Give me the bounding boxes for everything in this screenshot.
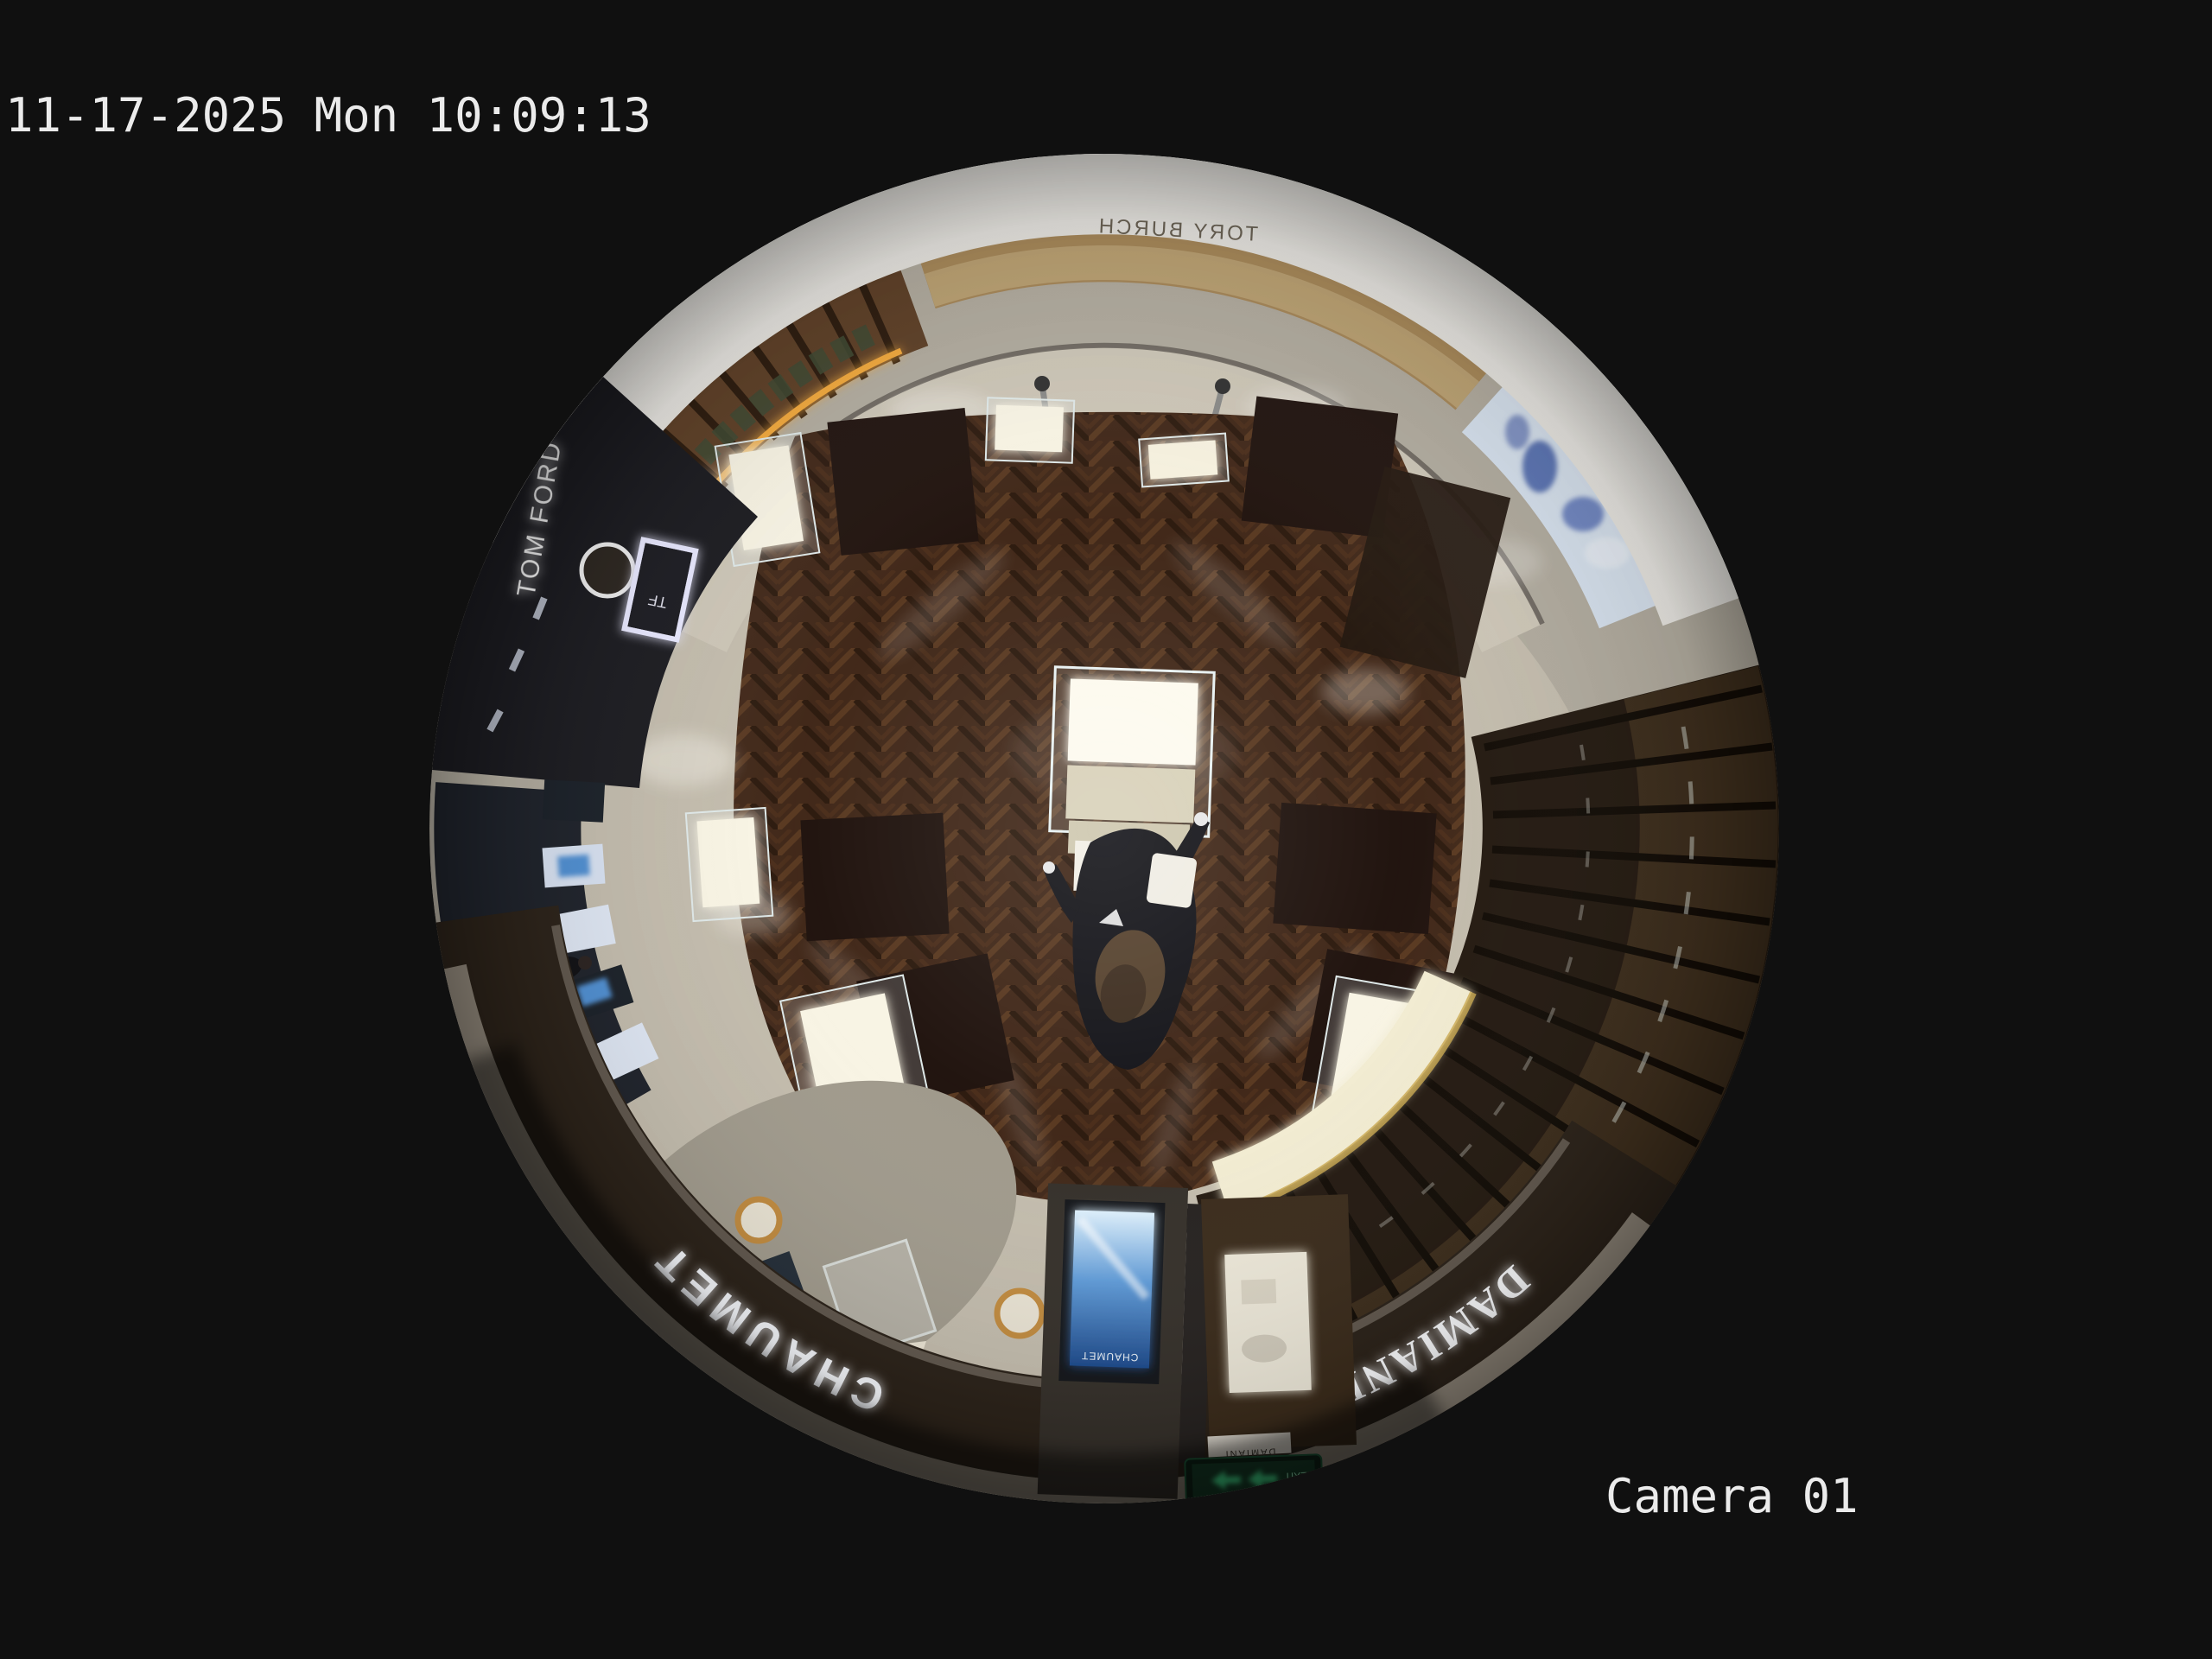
fisheye-view: TORY BURCH (0, 0, 2212, 1659)
camera-label-osd: Camera 01 (1605, 1469, 1859, 1523)
lens-vignette (429, 154, 1779, 1503)
cctv-frame: TORY BURCH (0, 0, 2212, 1659)
timestamp-osd: 11-17-2025 Mon 10:09:13 (5, 88, 652, 143)
